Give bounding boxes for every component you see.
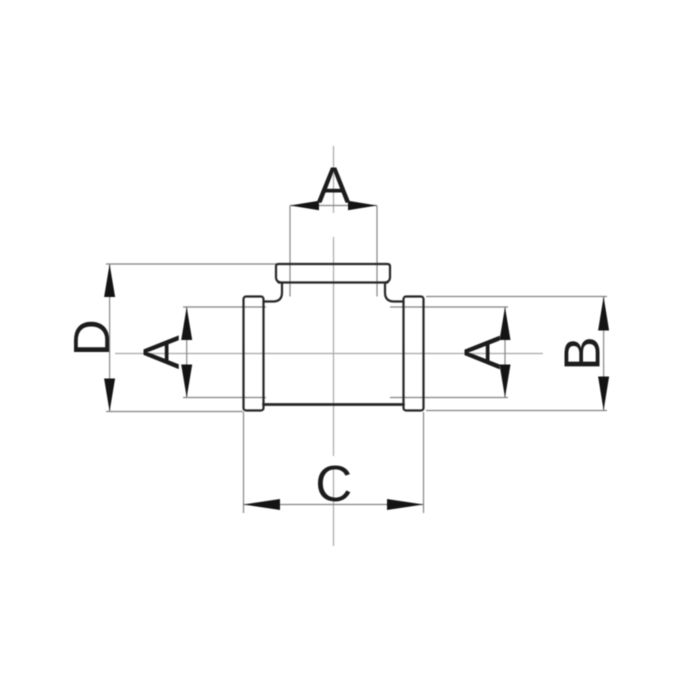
- svg-text:A: A: [133, 335, 190, 369]
- svg-text:D: D: [63, 319, 120, 356]
- svg-text:A: A: [454, 335, 511, 369]
- svg-text:A: A: [316, 157, 350, 214]
- svg-text:C: C: [315, 455, 352, 512]
- svg-text:B: B: [554, 336, 611, 370]
